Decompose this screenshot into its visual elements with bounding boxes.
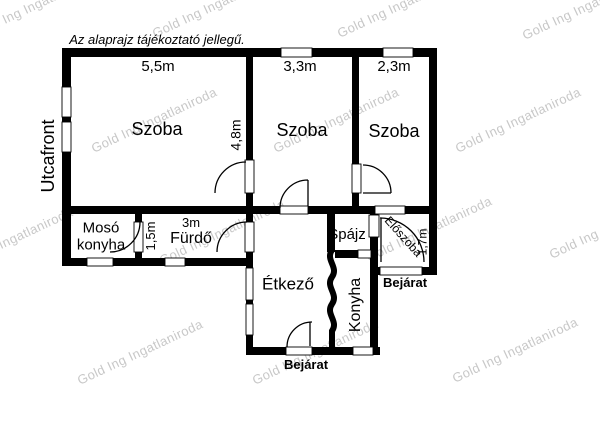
hallway-width: 1,7m (416, 229, 429, 256)
pantry-name: Spájz (328, 227, 366, 244)
laundry-kitchen-line2: konyha (77, 236, 125, 253)
laundry-kitchen-line1: Mosó (83, 220, 120, 237)
street-front-label: Utcafront (39, 119, 59, 192)
room2-width: 3,3m (283, 59, 316, 76)
room1-name: Szoba (131, 120, 182, 140)
room3-width: 2,3m (377, 59, 410, 76)
entrance-side-label: Bejárat (383, 276, 427, 290)
disclaimer-text: Az alaprajz tájékoztató jellegű. (69, 33, 245, 47)
laundry-kitchen-name: Mosó konyha (77, 221, 125, 254)
room1-width: 5,5m (141, 59, 174, 76)
bathroom-name: Fürdő (170, 230, 212, 248)
room1-depth: 4,8m (228, 119, 243, 150)
entrance-main-label: Bejárat (284, 358, 328, 372)
door-jambs (134, 160, 422, 355)
floor-plan: Gold Ing Ingatlaniroda Gold Ing Ingatlan… (0, 0, 600, 429)
wavy-wall (330, 250, 334, 349)
room2-name: Szoba (276, 121, 327, 141)
kitchen-name: Konyha (347, 278, 365, 332)
room3-name: Szoba (368, 122, 419, 142)
dining-room-name: Étkező (262, 276, 314, 295)
bathroom-depth: 1,5m (144, 222, 158, 251)
bathroom-width: 3m (182, 216, 200, 230)
